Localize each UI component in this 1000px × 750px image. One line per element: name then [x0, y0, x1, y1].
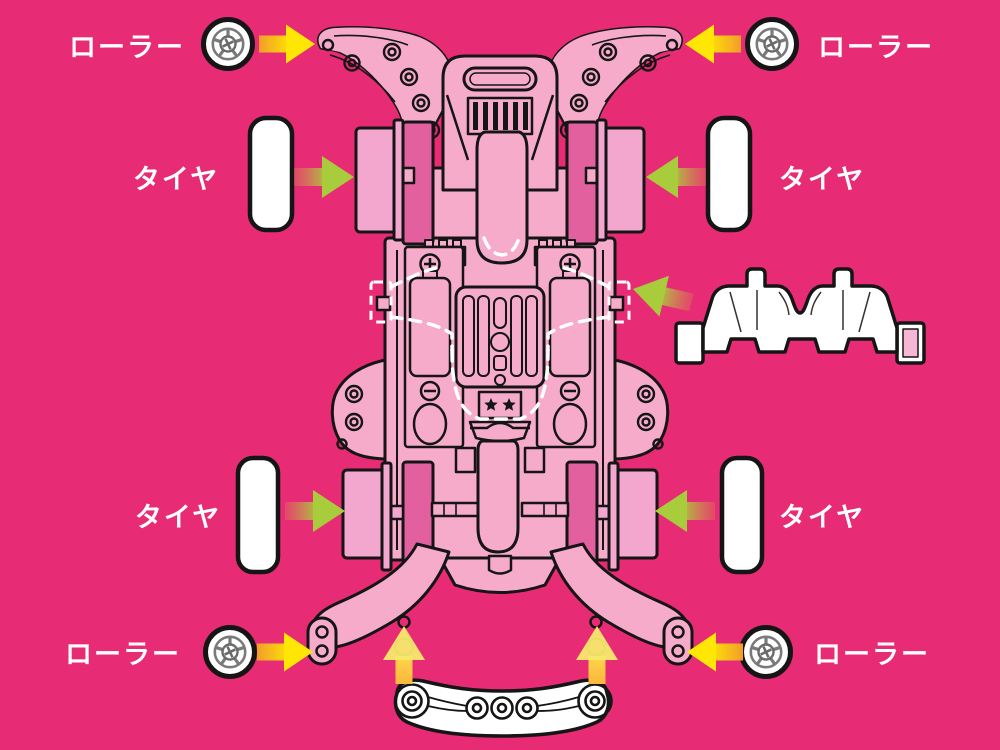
label-roller-top-right: ローラー	[818, 26, 934, 65]
roller-wheel-icon	[204, 20, 253, 69]
label-roller-bottom-left: ローラー	[65, 633, 181, 672]
logo-plate	[479, 392, 521, 418]
roller-wheel-icon	[206, 628, 255, 677]
rear-gear-cover	[478, 441, 518, 552]
label-tire-upper-left: タイヤ	[133, 158, 219, 197]
rear-center-tab	[489, 556, 511, 574]
label-roller-top-left: ローラー	[69, 26, 185, 65]
roller-wheel-icon	[748, 20, 797, 69]
diagram-canvas: ローラー ローラー タイヤ タイヤ タイヤ タイヤ ローラー ローラー	[0, 0, 1000, 750]
label-roller-bottom-right: ローラー	[814, 633, 930, 672]
label-tire-lower-right: タイヤ	[779, 496, 865, 535]
label-tire-lower-left: タイヤ	[135, 496, 221, 535]
motor-cover	[456, 287, 544, 387]
roller-wheel-icon	[742, 628, 791, 677]
label-tire-upper-right: タイヤ	[779, 158, 865, 197]
